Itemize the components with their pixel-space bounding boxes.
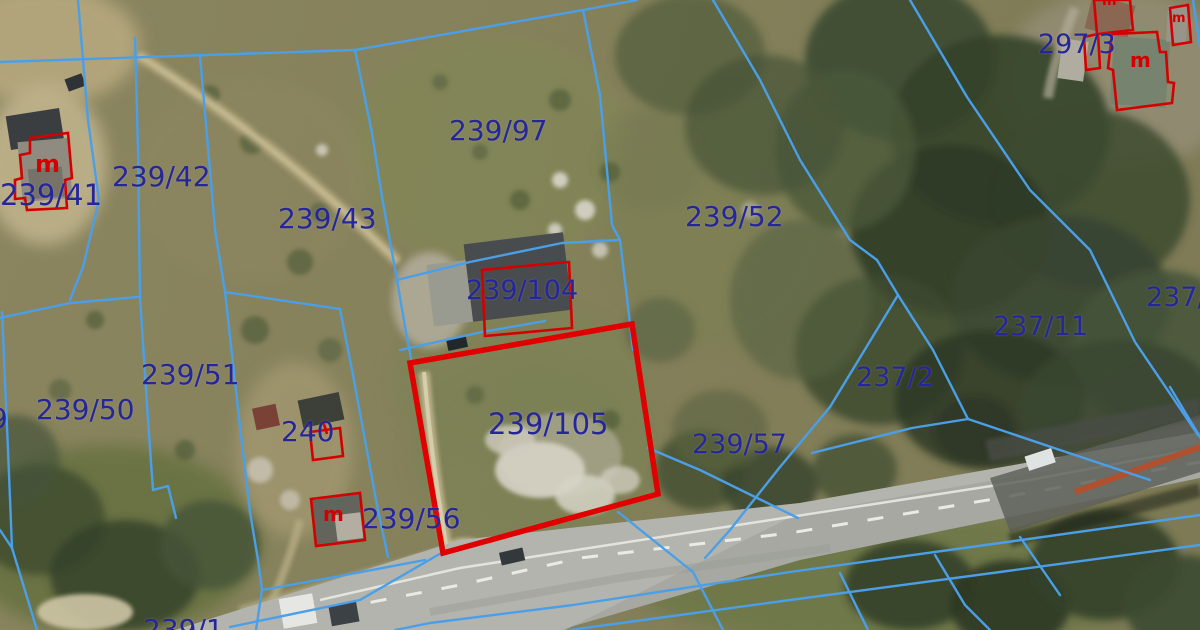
building-mark-m: m [35,152,60,176]
parcel-label-240: 240 [281,418,334,446]
parcel-label-239-42: 239/42 [112,163,211,191]
parcel-label-239-97: 239/97 [449,117,548,145]
parcel-label-297-3: 297/3 [1038,31,1116,58]
parcel-label-239-52: 239/52 [685,203,784,231]
parcel-label-237-2: 237/2 [856,364,934,391]
building-mark-m: m [323,504,344,524]
map-labels-layer: 239/42239/41239/43239/97239/52297/3239/1… [0,0,1200,630]
building-mark-m: m [1130,50,1151,70]
parcel-label-239-104: 239/104 [466,277,578,304]
parcel-label-237-6: 237/6 [1146,284,1200,311]
parcel-label-239-43: 239/43 [278,205,377,233]
parcel-label-239-105: 239/105 [488,410,608,439]
parcel-label-239-51: 239/51 [141,361,240,389]
parcel-label-239-50: 239/50 [36,396,135,424]
parcel-label-239-41: 239/41 [0,181,102,210]
cadastral-map: 239/42239/41239/43239/97239/52297/3239/1… [0,0,1200,630]
parcel-label-237-11: 237/11 [993,313,1088,340]
parcel-label-239-57: 239/57 [692,431,787,458]
parcel-label-239-56: 239/56 [362,505,461,533]
parcel-label-9: 9 [0,405,8,433]
parcel-label-239-1: 239/1 [143,616,224,630]
building-mark-m: m [1102,0,1117,8]
building-mark-m: m [1172,12,1186,25]
